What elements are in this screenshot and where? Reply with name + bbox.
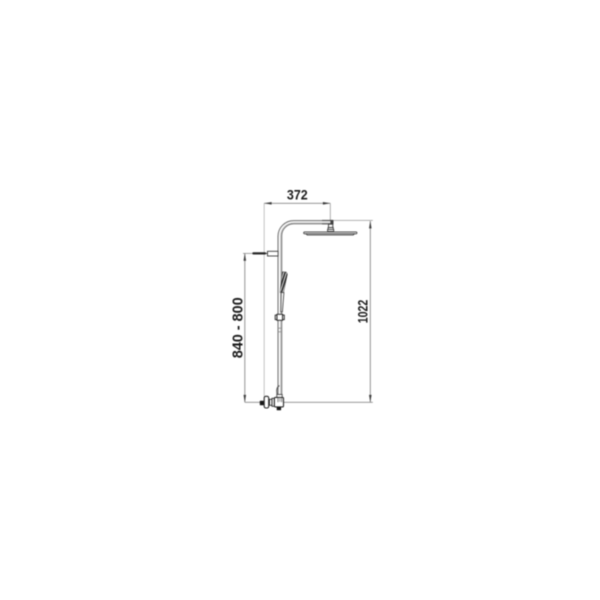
svg-text:372: 372 xyxy=(287,187,308,202)
svg-text:1022: 1022 xyxy=(354,300,370,324)
svg-text:840 - 800: 840 - 800 xyxy=(231,297,247,358)
